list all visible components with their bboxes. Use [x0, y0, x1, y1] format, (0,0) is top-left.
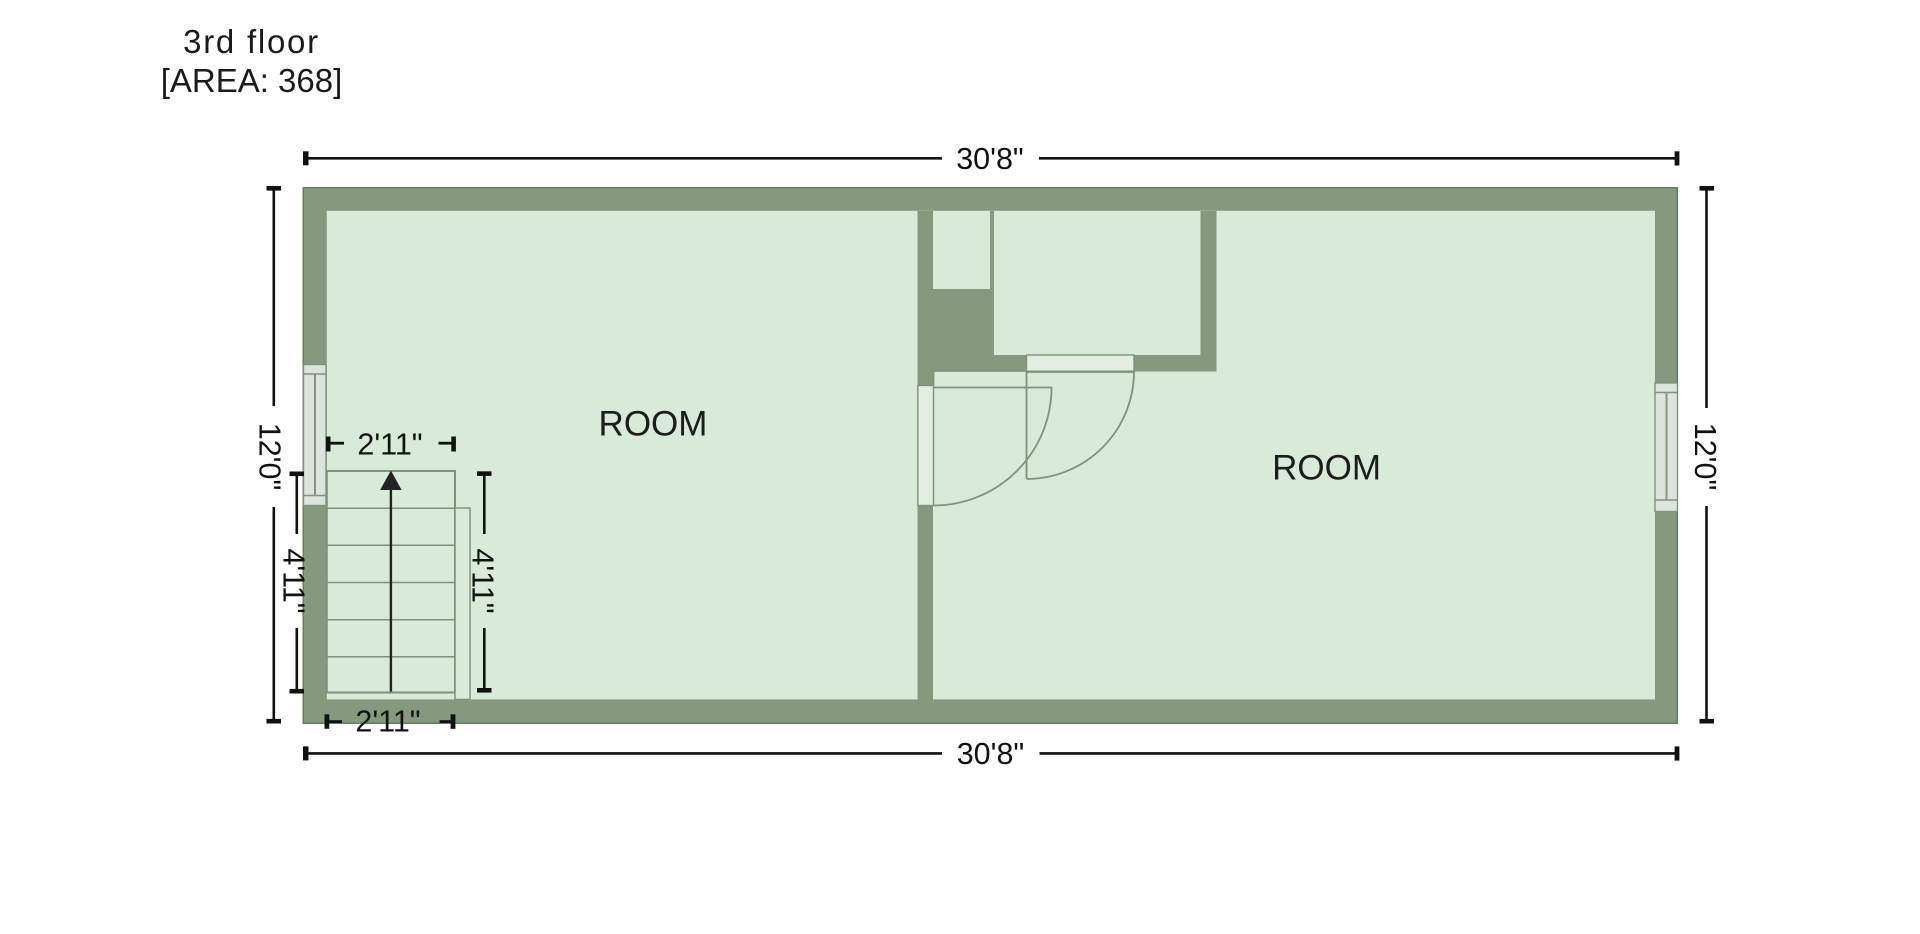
svg-text:4'11": 4'11": [466, 548, 500, 613]
svg-text:12'0": 12'0": [1688, 423, 1722, 491]
svg-text:30'8": 30'8": [956, 142, 1024, 176]
svg-text:2'11": 2'11": [355, 705, 420, 739]
svg-text:2'11": 2'11": [357, 428, 422, 462]
svg-text:3rd floor: 3rd floor: [183, 23, 320, 60]
svg-text:12'0": 12'0": [253, 423, 287, 491]
svg-text:4'11": 4'11": [277, 548, 311, 613]
svg-text:ROOM: ROOM: [599, 404, 708, 443]
svg-text:ROOM: ROOM: [1272, 449, 1381, 488]
svg-text:30'8": 30'8": [957, 737, 1025, 771]
svg-text:[AREA: 368]: [AREA: 368]: [161, 62, 343, 99]
